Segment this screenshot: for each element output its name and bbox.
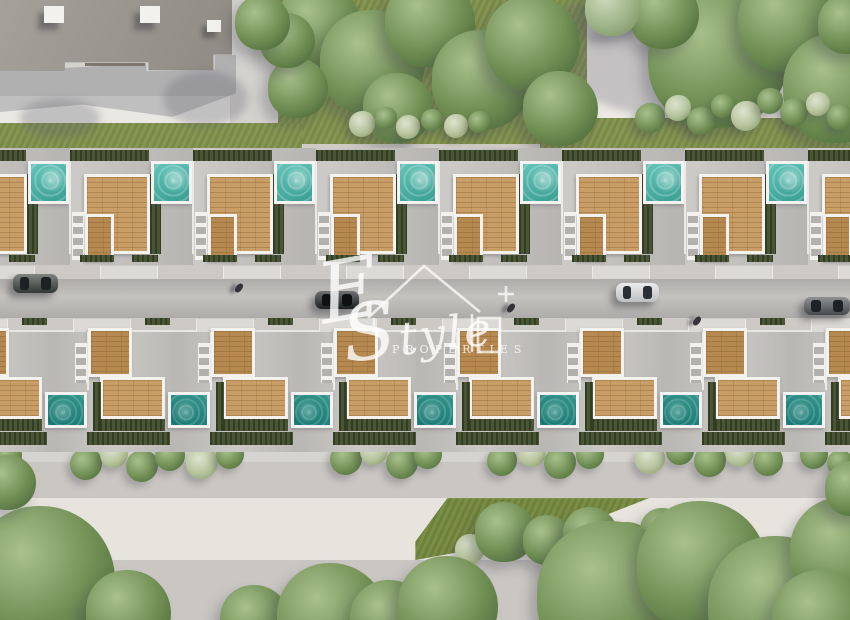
upper-roof-deck bbox=[0, 328, 9, 377]
swimming-pool bbox=[523, 164, 558, 201]
main-roof-deck bbox=[0, 174, 27, 254]
street-planter bbox=[449, 255, 483, 262]
road-asphalt bbox=[0, 279, 850, 318]
villa-unit-south bbox=[293, 332, 416, 452]
main-roof-deck bbox=[346, 377, 411, 419]
swimming-pool bbox=[277, 164, 312, 201]
tree bbox=[235, 0, 290, 50]
street-planter bbox=[145, 318, 170, 325]
upper-roof-deck bbox=[208, 214, 237, 261]
garden-strip bbox=[100, 419, 165, 431]
exterior-stairs bbox=[690, 343, 702, 383]
exterior-stairs bbox=[810, 212, 822, 260]
party-wall bbox=[579, 332, 581, 390]
villa-unit-north bbox=[685, 148, 808, 265]
swimming-pool bbox=[417, 395, 453, 425]
street-planter bbox=[624, 255, 650, 262]
driveway-apron bbox=[346, 266, 404, 279]
villa-unit-south bbox=[416, 332, 539, 452]
back-garden-hedge bbox=[579, 432, 662, 445]
bush bbox=[827, 104, 850, 130]
villa-unit-north bbox=[316, 148, 439, 265]
exterior-stairs bbox=[564, 212, 576, 260]
back-garden-hedge bbox=[825, 432, 850, 445]
exterior-stairs bbox=[444, 343, 456, 383]
garden-strip bbox=[0, 419, 42, 431]
rooftop-hvac-unit bbox=[44, 6, 64, 23]
car-window bbox=[41, 277, 51, 291]
garden-strip bbox=[592, 419, 657, 431]
rooftop-hvac-unit bbox=[207, 20, 221, 32]
swimming-pool bbox=[31, 164, 66, 201]
car-window bbox=[643, 286, 652, 300]
building-entrance-line bbox=[85, 63, 145, 66]
villa-unit-south bbox=[47, 332, 170, 452]
party-wall bbox=[87, 332, 89, 390]
main-roof-deck bbox=[0, 377, 42, 419]
party-wall bbox=[456, 332, 458, 390]
street-planter bbox=[818, 255, 850, 262]
main-roof-deck bbox=[592, 377, 657, 419]
swimming-pool bbox=[154, 164, 189, 201]
villa-unit-north bbox=[439, 148, 562, 265]
swimming-pool bbox=[294, 395, 330, 425]
exterior-stairs bbox=[195, 212, 207, 260]
party-wall bbox=[315, 161, 317, 254]
tree-shadow bbox=[20, 98, 100, 138]
car-window bbox=[322, 294, 331, 307]
back-garden-hedge bbox=[685, 150, 764, 161]
upper-roof-deck bbox=[88, 328, 132, 377]
villa-unit-south bbox=[785, 332, 850, 452]
back-garden-hedge bbox=[210, 432, 293, 445]
car-window bbox=[623, 286, 632, 300]
car-window bbox=[342, 294, 352, 307]
street-planter bbox=[572, 255, 606, 262]
party-wall bbox=[192, 161, 194, 254]
garden-strip bbox=[715, 419, 780, 431]
car-window bbox=[833, 300, 843, 313]
back-garden-hedge bbox=[702, 432, 785, 445]
street-planter bbox=[326, 255, 360, 262]
party-wall bbox=[69, 161, 71, 254]
upper-roof-deck bbox=[454, 214, 483, 261]
car bbox=[315, 291, 359, 309]
party-wall bbox=[807, 161, 809, 254]
street-planter bbox=[22, 318, 47, 325]
swimming-pool bbox=[400, 164, 435, 201]
exterior-stairs bbox=[687, 212, 699, 260]
swimming-pool bbox=[786, 395, 822, 425]
driveway-apron bbox=[592, 266, 650, 279]
garden-strip bbox=[838, 419, 850, 431]
swimming-pool bbox=[646, 164, 681, 201]
main-roof-deck bbox=[715, 377, 780, 419]
exterior-stairs bbox=[813, 343, 825, 383]
back-garden-hedge bbox=[0, 150, 26, 161]
upper-roof-deck bbox=[334, 328, 378, 377]
swimming-pool bbox=[663, 395, 699, 425]
party-wall bbox=[702, 332, 704, 390]
upper-roof-deck bbox=[457, 328, 501, 377]
villa-unit-north bbox=[193, 148, 316, 265]
upper-roof-deck bbox=[700, 214, 729, 261]
back-garden-hedge bbox=[333, 432, 416, 445]
rooftop-hvac-unit bbox=[140, 6, 160, 23]
back-garden-hedge bbox=[87, 432, 170, 445]
driveway-apron bbox=[838, 266, 850, 279]
exterior-stairs bbox=[318, 212, 330, 260]
street-planter bbox=[695, 255, 729, 262]
exterior-stairs bbox=[441, 212, 453, 260]
swimming-pool bbox=[769, 164, 804, 201]
villa-unit-south bbox=[539, 332, 662, 452]
villa-unit-south bbox=[0, 332, 47, 452]
street-planter bbox=[760, 318, 785, 325]
back-garden-hedge bbox=[562, 150, 641, 161]
car bbox=[616, 283, 659, 302]
main-roof-deck bbox=[838, 377, 850, 419]
exterior-stairs bbox=[72, 212, 84, 260]
street-planter bbox=[747, 255, 773, 262]
main-roof-deck bbox=[100, 377, 165, 419]
upper-roof-deck bbox=[577, 214, 606, 261]
villa-unit-north bbox=[0, 148, 70, 265]
upper-roof-deck bbox=[823, 214, 850, 261]
back-garden-hedge bbox=[439, 150, 518, 161]
street-planter bbox=[391, 318, 416, 325]
exterior-stairs bbox=[198, 343, 210, 383]
driveway-apron bbox=[469, 266, 527, 279]
street-planter bbox=[268, 318, 293, 325]
back-garden-hedge bbox=[456, 432, 539, 445]
garden-strip bbox=[346, 419, 411, 431]
back-garden-hedge bbox=[193, 150, 272, 161]
villa-unit-north bbox=[70, 148, 193, 265]
exterior-stairs bbox=[567, 343, 579, 383]
driveway-apron bbox=[223, 266, 281, 279]
party-wall bbox=[825, 332, 827, 390]
garden-strip bbox=[469, 419, 534, 431]
back-garden-hedge bbox=[0, 432, 47, 445]
car-window bbox=[811, 300, 820, 313]
swimming-pool bbox=[540, 395, 576, 425]
upper-roof-deck bbox=[580, 328, 624, 377]
upper-roof-deck bbox=[331, 214, 360, 261]
upper-roof-deck bbox=[826, 328, 850, 377]
villa-unit-south bbox=[170, 332, 293, 452]
party-wall bbox=[210, 332, 212, 390]
aerial-site-plan: E Style PROPERTIES bbox=[0, 0, 850, 620]
street-planter bbox=[378, 255, 404, 262]
main-roof-deck bbox=[223, 377, 288, 419]
street-planter bbox=[514, 318, 539, 325]
street-planter bbox=[132, 255, 158, 262]
street-planter bbox=[501, 255, 527, 262]
garden-strip bbox=[223, 419, 288, 431]
upper-roof-deck bbox=[703, 328, 747, 377]
upper-roof-deck bbox=[85, 214, 114, 261]
upper-roof-deck bbox=[211, 328, 255, 377]
swimming-pool bbox=[171, 395, 207, 425]
street-planter bbox=[637, 318, 662, 325]
driveway-apron bbox=[715, 266, 773, 279]
back-garden-hedge bbox=[808, 150, 850, 161]
swimming-pool bbox=[48, 395, 84, 425]
party-wall bbox=[438, 161, 440, 254]
exterior-stairs bbox=[75, 343, 87, 383]
driveway-apron bbox=[100, 266, 158, 279]
car-window bbox=[20, 277, 29, 291]
exterior-stairs bbox=[321, 343, 333, 383]
back-garden-hedge bbox=[70, 150, 149, 161]
tree bbox=[523, 71, 598, 146]
car bbox=[13, 274, 58, 293]
street-planter bbox=[80, 255, 114, 262]
party-wall bbox=[333, 332, 335, 390]
villa-unit-north bbox=[808, 148, 850, 265]
street-planter bbox=[255, 255, 281, 262]
party-wall bbox=[561, 161, 563, 254]
main-roof-deck bbox=[469, 377, 534, 419]
villa-unit-south bbox=[662, 332, 785, 452]
car bbox=[804, 297, 850, 315]
villa-unit-north bbox=[562, 148, 685, 265]
back-garden-hedge bbox=[316, 150, 395, 161]
tree-shadow bbox=[163, 71, 248, 126]
street-planter bbox=[203, 255, 237, 262]
street-planter bbox=[9, 255, 35, 262]
party-wall bbox=[684, 161, 686, 254]
